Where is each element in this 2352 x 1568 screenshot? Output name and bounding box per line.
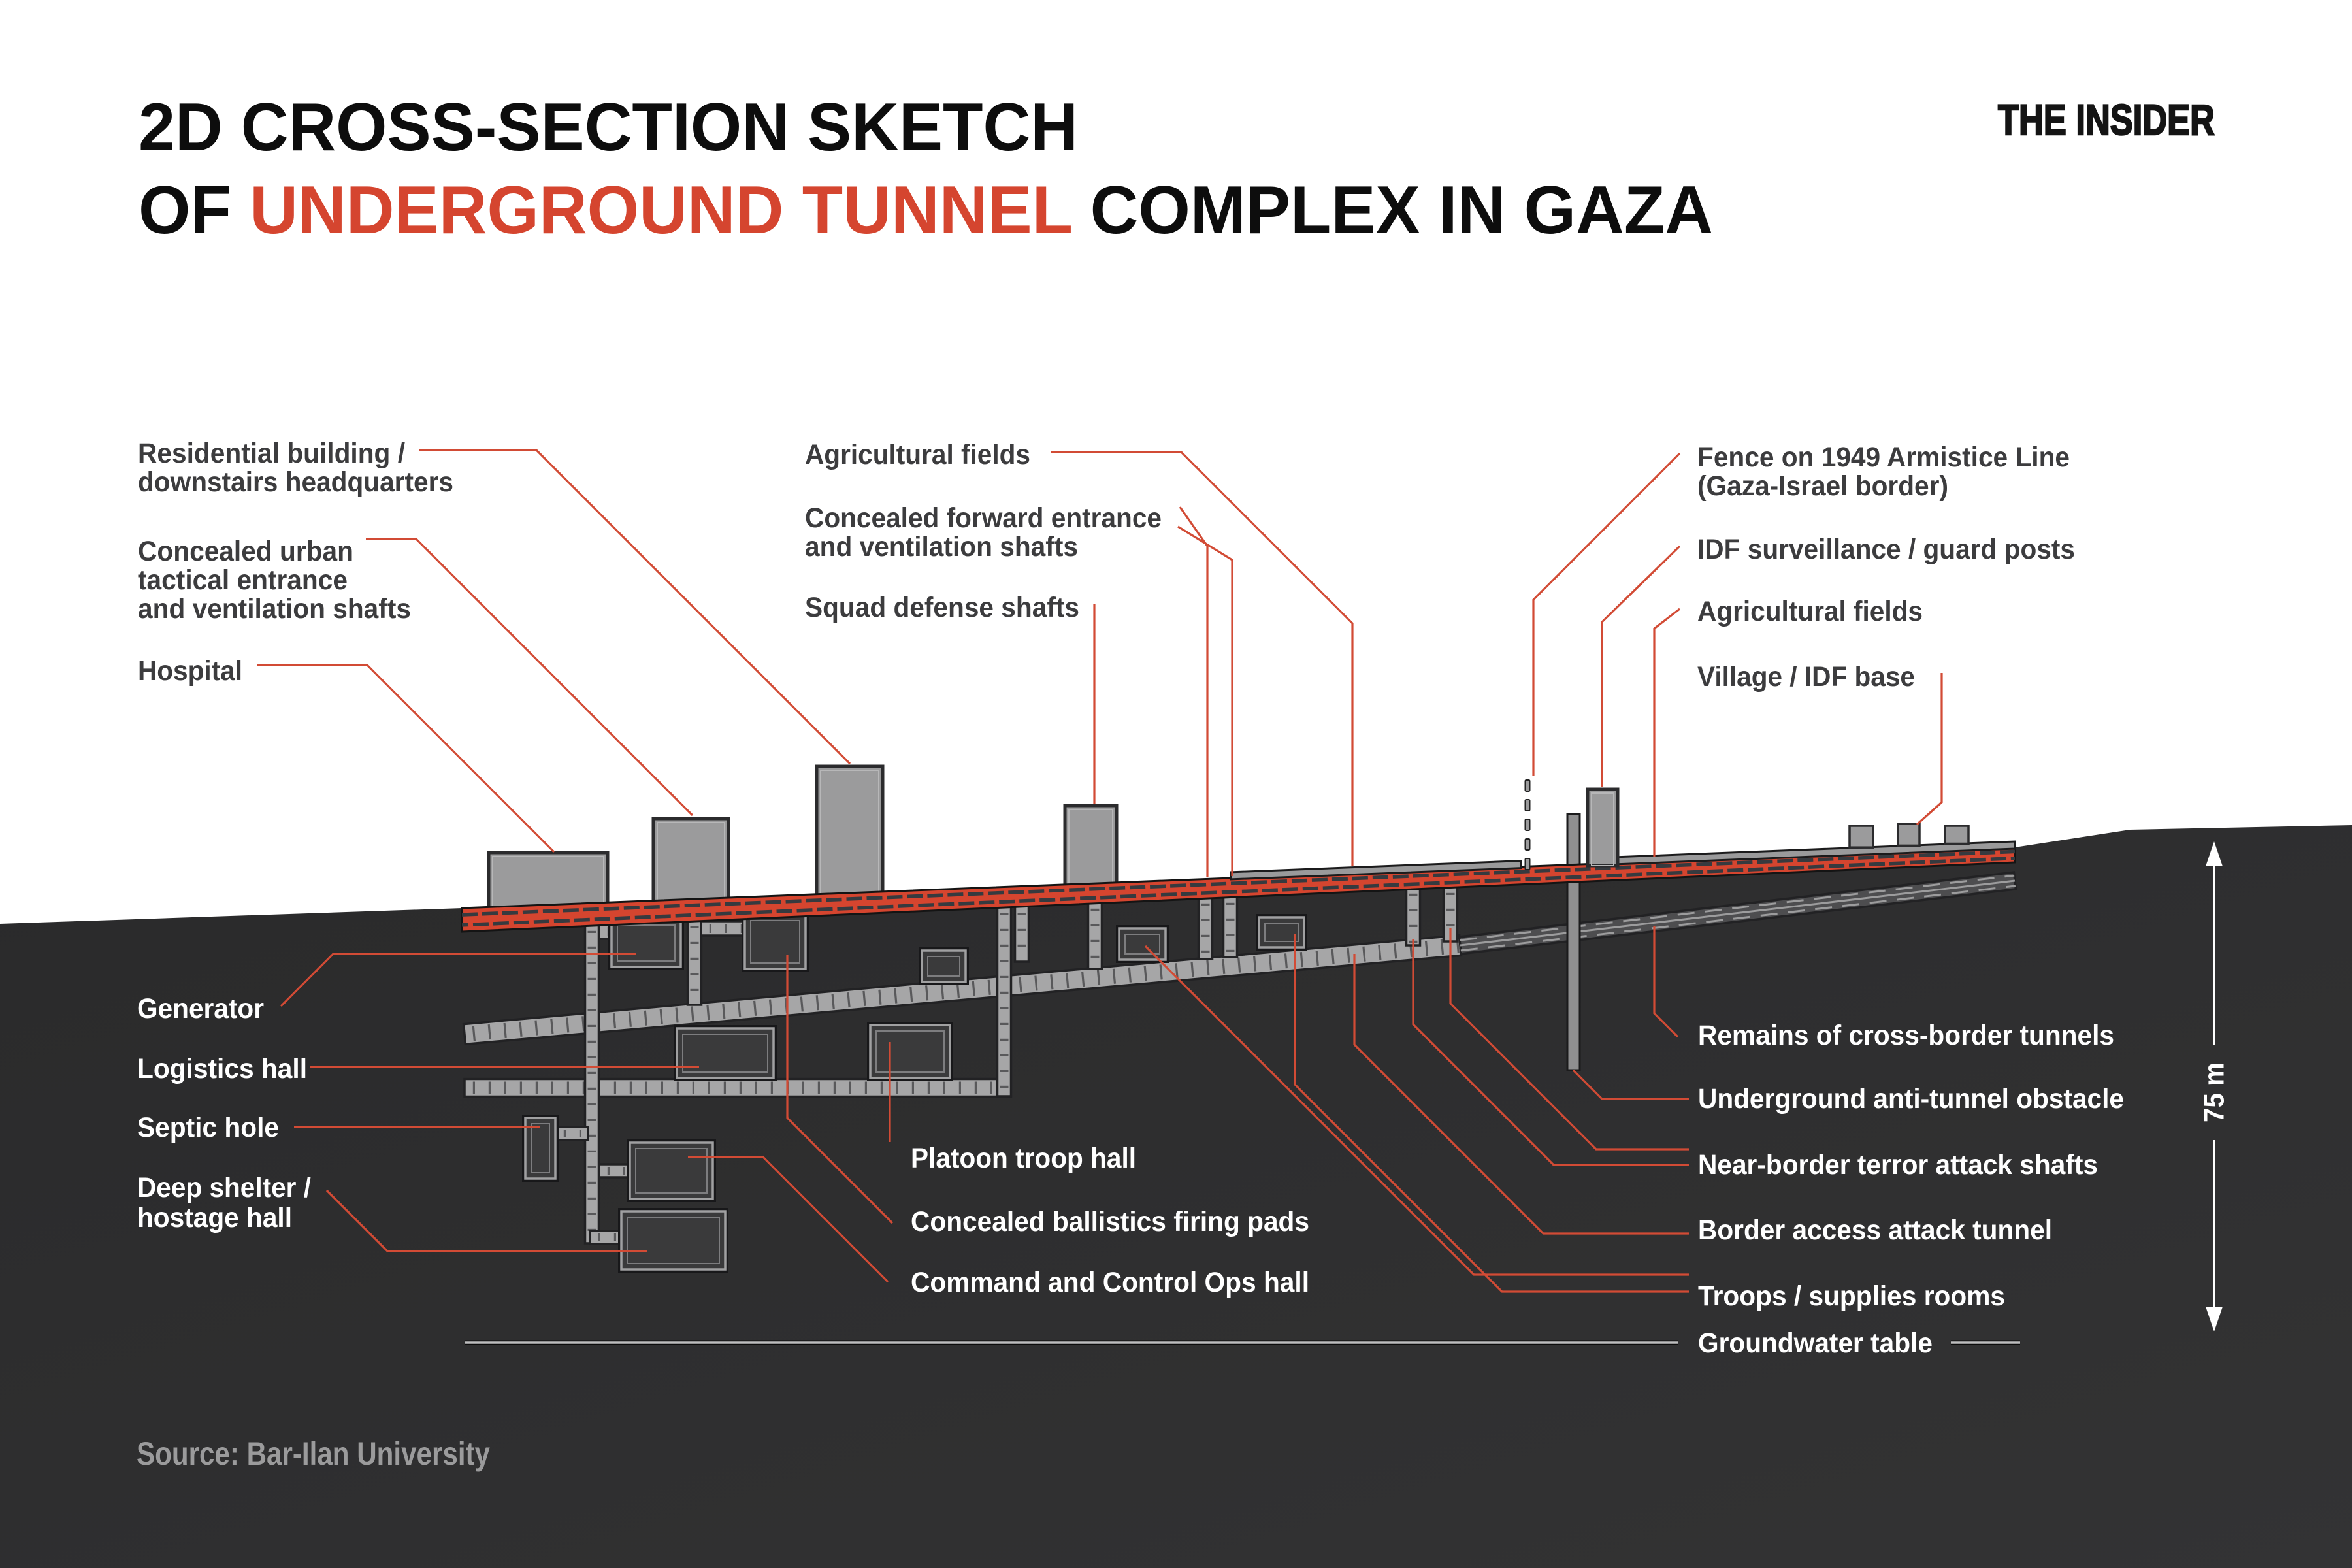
svg-text:downstairs headquarters: downstairs headquarters	[138, 466, 453, 498]
svg-text:Hospital: Hospital	[138, 655, 242, 687]
svg-text:and ventilation shafts: and ventilation shafts	[805, 531, 1078, 563]
svg-text:Agricultural fields: Agricultural fields	[1697, 596, 1923, 627]
svg-text:Source: Bar-Ilan University: Source: Bar-Ilan University	[137, 1435, 490, 1472]
svg-text:Concealed forward entrance: Concealed forward entrance	[805, 502, 1162, 534]
svg-text:Squad defense shafts: Squad defense shafts	[805, 592, 1079, 623]
svg-text:Concealed urban: Concealed urban	[138, 536, 353, 567]
svg-text:THE INSIDER: THE INSIDER	[1998, 95, 2215, 144]
svg-text:Septic hole: Septic hole	[137, 1112, 279, 1143]
svg-text:Fence on 1949 Armistice Line: Fence on 1949 Armistice Line	[1697, 442, 2070, 473]
svg-text:Agricultural fields: Agricultural fields	[805, 439, 1030, 470]
svg-text:Troops / supplies rooms: Troops / supplies rooms	[1698, 1281, 2005, 1312]
svg-text:2D CROSS-SECTION SKETCH: 2D CROSS-SECTION SKETCH	[139, 90, 1078, 165]
svg-text:Logistics hall: Logistics hall	[137, 1053, 307, 1085]
svg-text:Groundwater table: Groundwater table	[1698, 1328, 1933, 1359]
svg-text:tactical entrance: tactical entrance	[138, 564, 348, 596]
svg-text:Village / IDF base: Village / IDF base	[1697, 661, 1915, 693]
svg-text:(Gaza-Israel border): (Gaza-Israel border)	[1697, 470, 1948, 502]
svg-text:Underground anti-tunnel obstac: Underground anti-tunnel obstacle	[1698, 1083, 2124, 1115]
svg-text:Remains of cross-border tunnel: Remains of cross-border tunnels	[1698, 1020, 2114, 1051]
svg-text:Concealed ballistics firing pa: Concealed ballistics firing pads	[911, 1206, 1309, 1237]
svg-text:OF UNDERGROUND TUNNEL COMPLEX: OF UNDERGROUND TUNNEL COMPLEX IN GAZA	[139, 172, 1713, 248]
svg-text:Deep shelter /: Deep shelter /	[137, 1172, 311, 1203]
svg-text:and ventilation shafts: and ventilation shafts	[138, 593, 411, 625]
svg-text:Platoon troop hall: Platoon troop hall	[911, 1143, 1136, 1174]
svg-text:hostage hall: hostage hall	[137, 1202, 292, 1233]
svg-text:Command and Control Ops hall: Command and Control Ops hall	[911, 1267, 1309, 1298]
svg-text:Near-border terror attack shaf: Near-border terror attack shafts	[1698, 1149, 2098, 1181]
svg-text:IDF surveillance / guard posts: IDF surveillance / guard posts	[1697, 534, 2075, 565]
svg-text:75 m: 75 m	[2198, 1062, 2230, 1122]
svg-text:Residential building /: Residential building /	[138, 438, 405, 469]
svg-text:Generator: Generator	[137, 993, 264, 1024]
svg-text:Border access attack tunnel: Border access attack tunnel	[1698, 1215, 2052, 1246]
